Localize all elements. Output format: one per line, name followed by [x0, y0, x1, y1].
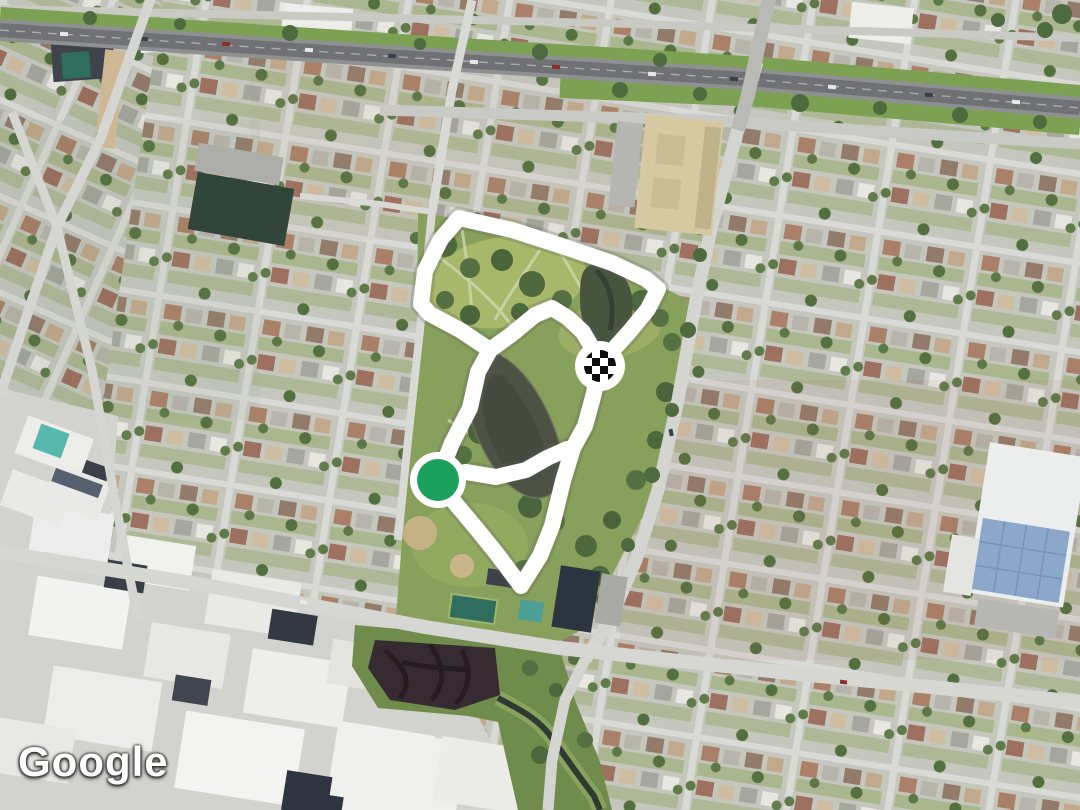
- ballfield-infield-2: [450, 554, 474, 578]
- satellite-map[interactable]: Google: [0, 0, 1080, 810]
- finish-checkered-flag-icon: [584, 350, 616, 382]
- map-canvas: [0, 0, 1080, 810]
- start-marker-dot: [417, 459, 459, 501]
- satellite-imagery-layer: [0, 0, 1080, 810]
- park-pool: [518, 599, 545, 622]
- tennis-courts: [449, 594, 498, 624]
- route-finish-marker[interactable]: [575, 341, 625, 391]
- ballfield-infield: [403, 516, 437, 550]
- google-watermark-logo: Google: [18, 738, 169, 786]
- route-start-marker[interactable]: [410, 452, 466, 508]
